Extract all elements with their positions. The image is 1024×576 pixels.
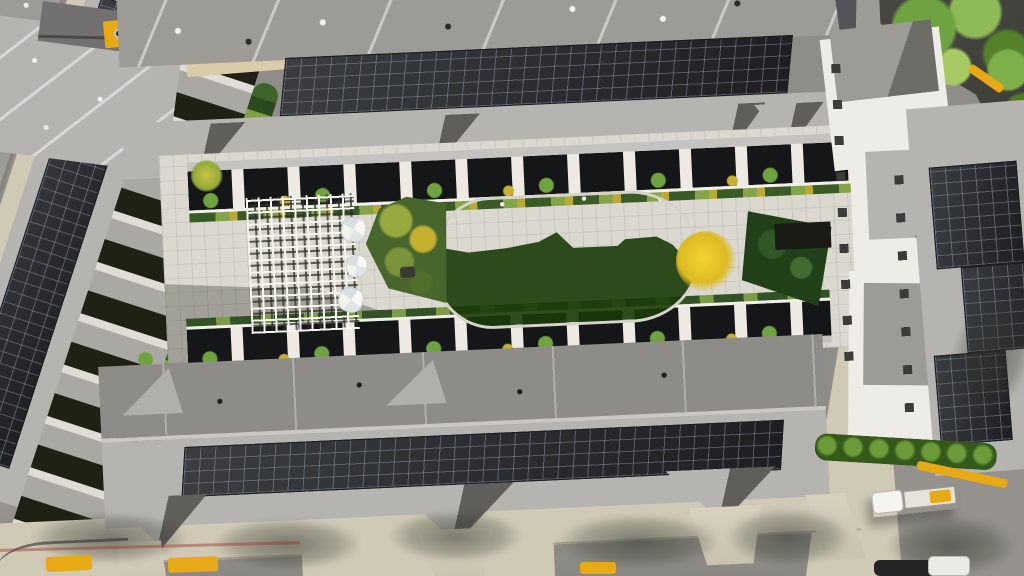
- patio-table: [400, 266, 415, 278]
- yellow-curb-segment: [46, 555, 93, 572]
- aerial-photo: [0, 0, 1024, 576]
- gable-shadow-on-lawn: [432, 191, 699, 329]
- tree-shadow: [726, 508, 851, 566]
- tree-shadow: [388, 510, 523, 562]
- yellow-curb-segment: [580, 562, 616, 574]
- parked-car-white: [928, 556, 970, 576]
- courtyard-lawn: [429, 188, 703, 332]
- yellow-curb-segment: [168, 556, 218, 573]
- truck-cargo: [929, 489, 951, 503]
- townhouse-roof: [829, 19, 939, 102]
- solar-array-east: [929, 161, 1024, 270]
- pergola-lattice: [246, 193, 360, 334]
- tree-shadow: [556, 514, 721, 569]
- truck-cab: [871, 489, 904, 514]
